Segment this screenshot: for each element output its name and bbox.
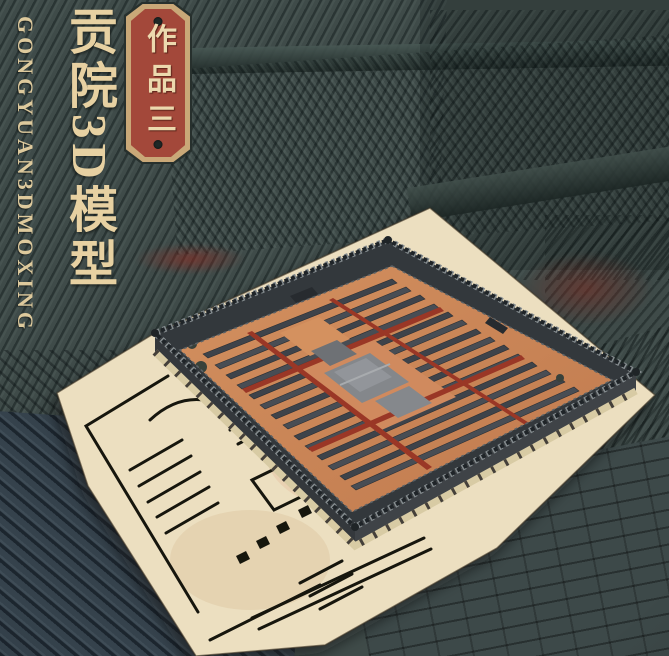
poster-title: 贡院3D模型 xyxy=(54,6,125,351)
work-number-plaque: 作品三 xyxy=(124,2,192,164)
plaque-border: 作品三 xyxy=(126,4,190,162)
plaque-face: 作品三 xyxy=(131,9,185,157)
plaque-label: 作品三 xyxy=(136,23,180,143)
poster: GONGYUAN3DMOXING 贡院3D模型 作品三 xyxy=(0,0,669,656)
romanization-text: GONGYUAN3DMOXING xyxy=(12,16,38,336)
